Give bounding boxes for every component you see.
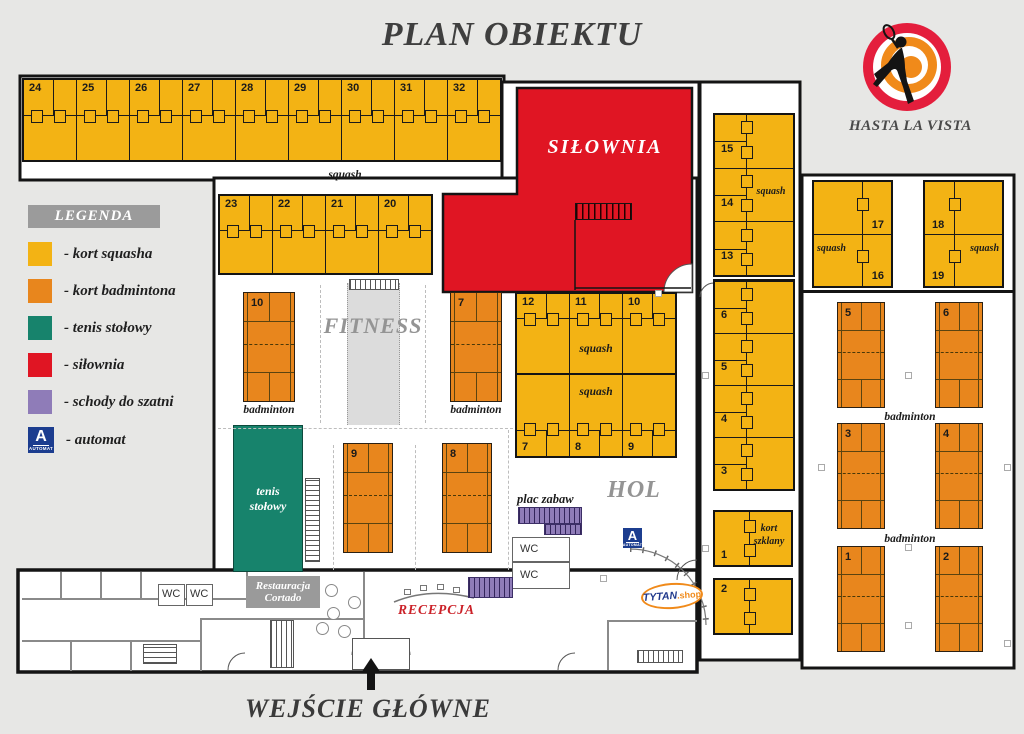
legend: LEGENDA - kort squasha- kort badmintona-… bbox=[28, 205, 198, 466]
table bbox=[338, 625, 351, 638]
court-line bbox=[577, 313, 589, 326]
court-line bbox=[386, 225, 398, 238]
reception-stool bbox=[404, 589, 411, 595]
column-marker bbox=[905, 372, 912, 379]
court-line bbox=[190, 110, 202, 123]
reception-stool bbox=[420, 585, 427, 591]
squash-court-11: 11 bbox=[570, 294, 623, 373]
squash-court-5: 5 bbox=[715, 334, 793, 386]
court-line bbox=[936, 352, 982, 353]
court-number: 28 bbox=[241, 83, 253, 94]
squash-court-10: 10 bbox=[623, 294, 675, 373]
table-tennis-area: tenis stołowy bbox=[233, 425, 303, 572]
court-line bbox=[936, 330, 982, 331]
wall-segment bbox=[60, 572, 62, 598]
shop-shelving bbox=[637, 650, 683, 663]
badminton-court-7: 7 bbox=[450, 292, 502, 402]
legend-item: - kort badmintona bbox=[28, 279, 198, 303]
wall-segment bbox=[607, 620, 697, 622]
automat-letter: A bbox=[626, 529, 639, 543]
squash-row-second: 23222120 bbox=[218, 194, 433, 275]
court-number: 7 bbox=[522, 442, 528, 453]
legend-item-label: - kort badmintona bbox=[64, 279, 176, 303]
column-marker bbox=[702, 545, 709, 552]
squash-mid-block: 121110 789 bbox=[515, 292, 677, 458]
court-number: 24 bbox=[29, 83, 41, 94]
court-line bbox=[741, 364, 753, 377]
court-line bbox=[861, 303, 862, 330]
partition-line bbox=[508, 430, 509, 570]
court-line bbox=[388, 444, 389, 552]
squash-row-top-label: squash bbox=[300, 169, 390, 181]
court-line bbox=[715, 141, 746, 142]
legend-swatch bbox=[28, 242, 52, 266]
court-line bbox=[741, 146, 753, 159]
main-entrance-label: WEJŚCIE GŁÓWNE bbox=[218, 694, 518, 724]
court-line bbox=[344, 495, 392, 496]
wall-segment bbox=[70, 640, 72, 671]
legend-swatch bbox=[28, 390, 52, 414]
squash-label: squash bbox=[817, 243, 846, 254]
court-line bbox=[402, 110, 414, 123]
glass-court-label: kort szklany bbox=[748, 522, 790, 548]
automat-legend-icon: AAUTOMAT bbox=[28, 427, 54, 453]
entrance-arrow-stem bbox=[367, 672, 375, 690]
locker-stairs bbox=[518, 507, 582, 524]
court-number: 22 bbox=[278, 199, 290, 210]
court-line bbox=[425, 110, 437, 123]
court-number: 1 bbox=[845, 552, 851, 563]
automat-caption: AUTOMAT bbox=[623, 543, 642, 547]
court-line bbox=[861, 380, 862, 407]
squash-label: squash bbox=[970, 243, 999, 254]
squash-mid-label-2: squash bbox=[546, 386, 646, 398]
court-line bbox=[861, 624, 862, 651]
glass-court-block: 1 kort szklany bbox=[713, 510, 793, 567]
court-line bbox=[939, 547, 940, 651]
crow: 121110 bbox=[517, 294, 675, 373]
court-line bbox=[244, 321, 294, 322]
badminton-court-8: 8 bbox=[442, 443, 492, 553]
court-line bbox=[54, 110, 66, 123]
court-two-block: 2 bbox=[713, 578, 793, 635]
court-line bbox=[841, 303, 842, 407]
wc-room: WC bbox=[186, 584, 213, 606]
squash-court-25: 25 bbox=[77, 80, 130, 160]
court-number: 18 bbox=[932, 220, 944, 231]
court-number: 10 bbox=[628, 297, 640, 308]
court-line bbox=[303, 225, 315, 238]
staircase bbox=[270, 620, 294, 668]
court-line bbox=[497, 293, 498, 401]
court-line bbox=[487, 444, 488, 552]
wc-label: WC bbox=[520, 569, 538, 581]
locker-stairs bbox=[468, 577, 513, 598]
wall-segment bbox=[802, 290, 1014, 293]
legend-item: AAUTOMAT- automat bbox=[28, 427, 198, 453]
wc-label: WC bbox=[190, 588, 208, 600]
court-line bbox=[356, 225, 368, 238]
column-marker bbox=[905, 544, 912, 551]
court-line bbox=[880, 424, 881, 528]
fitness-turnstile bbox=[349, 279, 399, 290]
court-line bbox=[630, 313, 642, 326]
table-tennis-label: tenis stołowy bbox=[242, 484, 294, 514]
court-line bbox=[741, 468, 753, 481]
court-line bbox=[838, 352, 884, 353]
rbh bbox=[925, 234, 1002, 235]
court-line bbox=[600, 423, 612, 436]
wc-room: WC bbox=[512, 562, 570, 589]
automat-caption: AUTOMAT bbox=[29, 446, 53, 451]
tytan-shop-suffix: .shop bbox=[677, 589, 702, 601]
court-line bbox=[446, 444, 447, 552]
court-line bbox=[741, 444, 753, 457]
column-marker bbox=[600, 575, 607, 582]
court-line bbox=[715, 464, 746, 465]
reception-stool bbox=[437, 584, 444, 590]
court-line bbox=[838, 451, 884, 452]
court-line bbox=[936, 596, 982, 597]
court-number: 5 bbox=[845, 308, 851, 319]
entrance-arrow bbox=[361, 658, 381, 673]
partition-line bbox=[425, 285, 426, 423]
court-line bbox=[741, 229, 753, 242]
hol-label: HOL bbox=[584, 477, 684, 504]
table bbox=[316, 622, 329, 635]
court-number: 13 bbox=[721, 251, 733, 262]
court-line bbox=[939, 303, 940, 407]
court-line bbox=[269, 293, 270, 321]
court-number: 11 bbox=[575, 297, 587, 308]
court-line bbox=[959, 424, 960, 451]
circle bbox=[896, 37, 907, 48]
squash-court-32: 32 bbox=[448, 80, 500, 160]
court-number: 20 bbox=[384, 199, 396, 210]
silownia-stairs bbox=[575, 203, 632, 220]
legend-items: - kort squasha- kort badmintona- tenis s… bbox=[28, 242, 198, 453]
court-number: 9 bbox=[628, 442, 634, 453]
court-line bbox=[478, 110, 490, 123]
court-number: 14 bbox=[721, 198, 733, 209]
court-line bbox=[290, 293, 291, 401]
squash-court-13: 13 bbox=[715, 222, 793, 275]
legend-swatch bbox=[28, 279, 52, 303]
squash-court-15: 15 bbox=[715, 115, 793, 169]
court-line bbox=[861, 424, 862, 451]
court-number: 21 bbox=[331, 199, 343, 210]
squash-court-22: 22 bbox=[273, 196, 326, 273]
legend-title: LEGENDA bbox=[28, 205, 160, 228]
legend-item: - schody do szatni bbox=[28, 390, 198, 414]
column-marker bbox=[1004, 640, 1011, 647]
court-line bbox=[244, 344, 294, 345]
court-line bbox=[741, 392, 753, 405]
court-line bbox=[936, 574, 982, 575]
brand-name: HASTA LA VISTA bbox=[838, 118, 983, 135]
court-number: 26 bbox=[135, 83, 147, 94]
squash-court-31: 31 bbox=[395, 80, 448, 160]
vending-machine-icon: A AUTOMAT bbox=[623, 528, 642, 548]
squash-court-3: 3 bbox=[715, 438, 793, 489]
court-line bbox=[838, 330, 884, 331]
badminton-court-3: 3 bbox=[837, 423, 885, 529]
court-number: 16 bbox=[872, 271, 884, 282]
court-line bbox=[861, 501, 862, 528]
d bbox=[857, 250, 869, 263]
court-line bbox=[455, 110, 467, 123]
partition-line bbox=[333, 445, 334, 570]
locker-stairs-step bbox=[544, 524, 582, 535]
court-line bbox=[467, 444, 468, 472]
squash-court-12: 12 bbox=[517, 294, 570, 373]
wall-segment bbox=[100, 572, 102, 598]
court-number: 19 bbox=[932, 271, 944, 282]
court-line bbox=[978, 424, 979, 528]
court-line bbox=[368, 524, 369, 552]
reception-label: RECEPCJA bbox=[398, 602, 475, 618]
tytan-shop-name: TYTAN bbox=[643, 590, 678, 604]
squash-mid-label-1: squash bbox=[546, 343, 646, 355]
page-title: PLAN OBIEKTU bbox=[332, 16, 692, 54]
court-line bbox=[841, 547, 842, 651]
silownia-label: SIŁOWNIA bbox=[530, 136, 680, 159]
court-line bbox=[227, 225, 239, 238]
court-line bbox=[741, 121, 753, 134]
court-line bbox=[600, 313, 612, 326]
court-line bbox=[266, 110, 278, 123]
court-line bbox=[476, 293, 477, 321]
court-number: 12 bbox=[522, 297, 534, 308]
column-marker bbox=[655, 290, 662, 297]
squash-court-21: 21 bbox=[326, 196, 379, 273]
legend-item: - kort squasha bbox=[28, 242, 198, 266]
court-number: 31 bbox=[400, 83, 412, 94]
column-marker bbox=[1004, 464, 1011, 471]
squash-court-4: 4 bbox=[715, 386, 793, 438]
court-line bbox=[841, 424, 842, 528]
court-number: 3 bbox=[845, 429, 851, 440]
court-line bbox=[861, 547, 862, 574]
wc-room: WC bbox=[512, 537, 570, 562]
court-number: 2 bbox=[943, 552, 949, 563]
squash-court-24: 24 bbox=[24, 80, 77, 160]
table bbox=[325, 584, 338, 597]
d bbox=[857, 198, 869, 211]
court-line bbox=[160, 110, 172, 123]
plac-zabaw-label: plac zabaw bbox=[517, 492, 574, 507]
court-number: 29 bbox=[294, 83, 306, 94]
legend-swatch bbox=[28, 353, 52, 377]
badminton-label: badminton bbox=[219, 404, 319, 416]
wc-room: WC bbox=[158, 584, 185, 606]
legend-item-label: - kort squasha bbox=[64, 242, 152, 266]
court-number: 8 bbox=[450, 449, 456, 460]
court-line bbox=[347, 444, 348, 552]
rbh bbox=[814, 234, 891, 235]
court-line bbox=[467, 524, 468, 552]
squash-court-26: 26 bbox=[130, 80, 183, 160]
wall-segment bbox=[607, 620, 609, 670]
wall-segment bbox=[22, 640, 200, 642]
d bbox=[744, 612, 756, 625]
fitness-strip bbox=[347, 283, 400, 425]
court-line bbox=[838, 596, 884, 597]
court-number: 7 bbox=[458, 298, 464, 309]
court-number: 8 bbox=[575, 442, 581, 453]
court-line bbox=[368, 444, 369, 472]
wc-label: WC bbox=[520, 543, 538, 555]
automat-letter: A bbox=[33, 429, 49, 446]
court-line bbox=[213, 110, 225, 123]
court-line bbox=[443, 472, 491, 473]
court-number: 4 bbox=[943, 429, 949, 440]
partition-line bbox=[320, 285, 321, 423]
court-line bbox=[959, 547, 960, 574]
court-line bbox=[959, 501, 960, 528]
court-line bbox=[349, 110, 361, 123]
court-line bbox=[715, 412, 746, 413]
legend-item-label: - schody do szatni bbox=[64, 390, 174, 414]
restaurant-label: Restauracja Cortado bbox=[250, 580, 316, 604]
squash-court-23: 23 bbox=[220, 196, 273, 273]
squash-court-28: 28 bbox=[236, 80, 289, 160]
court-line bbox=[524, 313, 536, 326]
squash-block-18-19: 18 19 squash bbox=[923, 180, 1004, 288]
court-line bbox=[959, 624, 960, 651]
court-number: 27 bbox=[188, 83, 200, 94]
court-line bbox=[741, 340, 753, 353]
court-line bbox=[84, 110, 96, 123]
reception-stool bbox=[453, 587, 460, 593]
court-line bbox=[280, 225, 292, 238]
court-line bbox=[959, 303, 960, 330]
badminton-court-2: 2 bbox=[935, 546, 983, 652]
court-line bbox=[978, 303, 979, 407]
glass-court-number: 1 bbox=[721, 550, 727, 561]
court-number: 25 bbox=[82, 83, 94, 94]
brand-logo bbox=[845, 14, 970, 119]
squash-strip-label: squash bbox=[744, 186, 798, 197]
badminton-court-10: 10 bbox=[243, 292, 295, 402]
d bbox=[949, 198, 961, 211]
court-line bbox=[715, 308, 746, 309]
court-number: 6 bbox=[943, 308, 949, 319]
court-line bbox=[978, 547, 979, 651]
badminton-court-1: 1 bbox=[837, 546, 885, 652]
court-line bbox=[936, 473, 982, 474]
badminton-court-5: 5 bbox=[837, 302, 885, 408]
court-line bbox=[880, 547, 881, 651]
court-line bbox=[880, 303, 881, 407]
badminton-court-4: 4 bbox=[935, 423, 983, 529]
court-number: 4 bbox=[721, 414, 727, 425]
legend-item: - siłownia bbox=[28, 353, 198, 377]
court-line bbox=[653, 313, 665, 326]
restaurant-area: Restauracja Cortado bbox=[246, 576, 320, 608]
court-line bbox=[715, 249, 746, 250]
legend-item-label: - automat bbox=[66, 428, 126, 452]
court-line bbox=[936, 451, 982, 452]
court-line bbox=[741, 312, 753, 325]
wall-segment bbox=[140, 572, 142, 598]
column-marker bbox=[818, 464, 825, 471]
legend-item: - tenis stołowy bbox=[28, 316, 198, 340]
court-line bbox=[451, 344, 501, 345]
badminton-court-9: 9 bbox=[343, 443, 393, 553]
badminton-label: badminton bbox=[860, 411, 960, 423]
legend-item-label: - siłownia bbox=[64, 353, 124, 377]
court-line bbox=[443, 495, 491, 496]
court-number: 9 bbox=[351, 449, 357, 460]
court-line bbox=[547, 313, 559, 326]
court-line bbox=[838, 473, 884, 474]
court-line bbox=[451, 321, 501, 322]
court-two-number: 2 bbox=[721, 584, 727, 595]
court-line bbox=[250, 225, 262, 238]
squash-court-29: 29 bbox=[289, 80, 342, 160]
court-line bbox=[630, 423, 642, 436]
court-line bbox=[247, 293, 248, 401]
court-number: 15 bbox=[721, 144, 733, 155]
court-line bbox=[454, 293, 455, 401]
court-number: 17 bbox=[872, 220, 884, 231]
facility-floor-plan: PLAN OBIEKTU HASTA LA VISTA LEGENDA - ko… bbox=[0, 0, 1024, 734]
court-number: 23 bbox=[225, 199, 237, 210]
staircase bbox=[143, 644, 177, 664]
court-line bbox=[344, 472, 392, 473]
table bbox=[327, 607, 340, 620]
court-number: 5 bbox=[721, 362, 727, 373]
d bbox=[949, 250, 961, 263]
court-line bbox=[107, 110, 119, 123]
squash-court-6: 6 bbox=[715, 282, 793, 334]
court-line bbox=[296, 110, 308, 123]
court-line bbox=[653, 423, 665, 436]
badminton-court-6: 6 bbox=[935, 302, 983, 408]
squash-block-17-16: 17 16 squash bbox=[812, 180, 893, 288]
court-line bbox=[741, 253, 753, 266]
court-line bbox=[524, 423, 536, 436]
court-line bbox=[243, 110, 255, 123]
d bbox=[744, 588, 756, 601]
squash-court-30: 30 bbox=[342, 80, 395, 160]
legend-swatch bbox=[28, 316, 52, 340]
court-line bbox=[409, 225, 421, 238]
staircase bbox=[305, 478, 320, 562]
court-line bbox=[939, 424, 940, 528]
table bbox=[348, 596, 361, 609]
partition-line bbox=[415, 445, 416, 570]
court-number: 30 bbox=[347, 83, 359, 94]
court-line bbox=[31, 110, 43, 123]
court-number: 3 bbox=[721, 466, 727, 477]
court-line bbox=[137, 110, 149, 123]
column-marker bbox=[905, 622, 912, 629]
court-line bbox=[741, 199, 753, 212]
wall-segment bbox=[200, 618, 202, 671]
column-marker bbox=[702, 372, 709, 379]
court-line bbox=[269, 373, 270, 401]
partition-line bbox=[218, 428, 513, 429]
court-line bbox=[319, 110, 331, 123]
court-line bbox=[577, 423, 589, 436]
court-number: 32 bbox=[453, 83, 465, 94]
squash-row-top: 242526272829303132 bbox=[22, 78, 502, 162]
court-line bbox=[372, 110, 384, 123]
court-line bbox=[959, 380, 960, 407]
court-number: 10 bbox=[251, 298, 263, 309]
